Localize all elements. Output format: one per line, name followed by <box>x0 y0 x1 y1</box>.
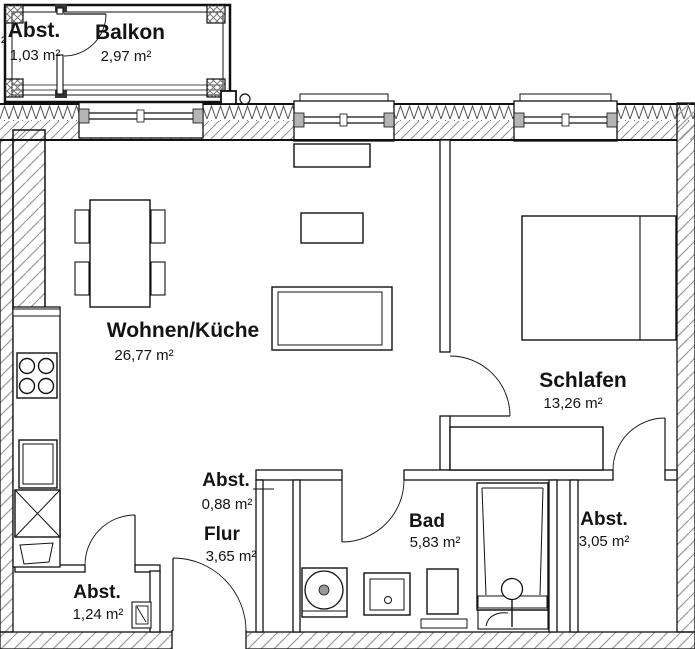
exterior-wall-right <box>677 103 695 632</box>
room-label-abst-bottom: Abst. <box>73 582 121 603</box>
room-area-balkon: 2,97 m² <box>101 48 152 65</box>
exterior-wall-left <box>0 140 13 632</box>
toilet-icon <box>421 569 467 628</box>
basin-icon <box>20 543 53 564</box>
washbasin-icon <box>364 573 410 615</box>
washing-machine-icon <box>302 568 347 617</box>
balcony-corner-block <box>207 5 225 23</box>
room-area-schlafen: 13,26 m² <box>543 395 602 412</box>
room-area-abst-bottom: 1,24 m² <box>73 606 124 623</box>
chair <box>151 262 165 295</box>
room-area-wohnen: 26,77 m² <box>114 347 173 364</box>
chair <box>75 262 89 295</box>
wardrobe <box>450 427 603 470</box>
room-area-abst-flur: 0,88 m² <box>202 496 253 513</box>
room-label-flur: Flur <box>204 524 240 545</box>
room-label-bad: Bad <box>409 511 445 532</box>
door-bad <box>342 480 404 542</box>
door-abst-bottom <box>85 515 135 565</box>
balcony-corner-block <box>5 79 23 97</box>
entrance-opening <box>172 630 246 649</box>
storage-fixture <box>132 602 151 628</box>
room-label-balkon: Balkon <box>95 21 165 44</box>
room-area-abst-right: 3,05 m² <box>579 533 630 550</box>
coffee-table <box>301 213 363 243</box>
exterior-wall-bottom <box>0 632 695 649</box>
dining-set <box>75 200 165 307</box>
dining-table <box>90 200 150 307</box>
room-area-balcony-abst: 1,03 m² <box>10 47 61 64</box>
edge-text-fragment: ² <box>1 34 6 51</box>
wall-pier <box>13 130 45 310</box>
double-bed <box>522 216 676 340</box>
faucet-icon <box>502 579 523 600</box>
downpipe-icon <box>240 94 250 104</box>
door-bedroom <box>450 356 510 416</box>
chair <box>151 210 165 243</box>
floor-plan-canvas: Abst. 1,03 m² Balkon 2,97 m² Wohnen/Küch… <box>0 0 695 649</box>
room-area-bad: 5,83 m² <box>410 534 461 551</box>
door-entrance <box>173 558 246 631</box>
door-abst-right <box>613 418 665 470</box>
chair <box>75 210 89 243</box>
room-area-flur: 3,65 m² <box>206 548 257 565</box>
bathtub-icon <box>477 483 548 629</box>
floor-plan-page: Abst. 1,03 m² Balkon 2,97 m² Wohnen/Küch… <box>0 0 695 649</box>
room-label-wohnen: Wohnen/Küche <box>107 319 259 342</box>
window-living-right <box>294 94 394 141</box>
room-label-balcony-abst: Abst. <box>8 19 61 42</box>
sofa <box>272 287 392 350</box>
room-label-abst-right: Abst. <box>580 509 628 530</box>
room-label-abst-flur: Abst. <box>202 470 250 491</box>
downpipe-box <box>221 91 236 104</box>
sideboard <box>294 144 370 167</box>
kitchen-counter <box>13 307 60 567</box>
room-label-schlafen: Schlafen <box>539 369 627 392</box>
window-bedroom <box>514 94 617 141</box>
